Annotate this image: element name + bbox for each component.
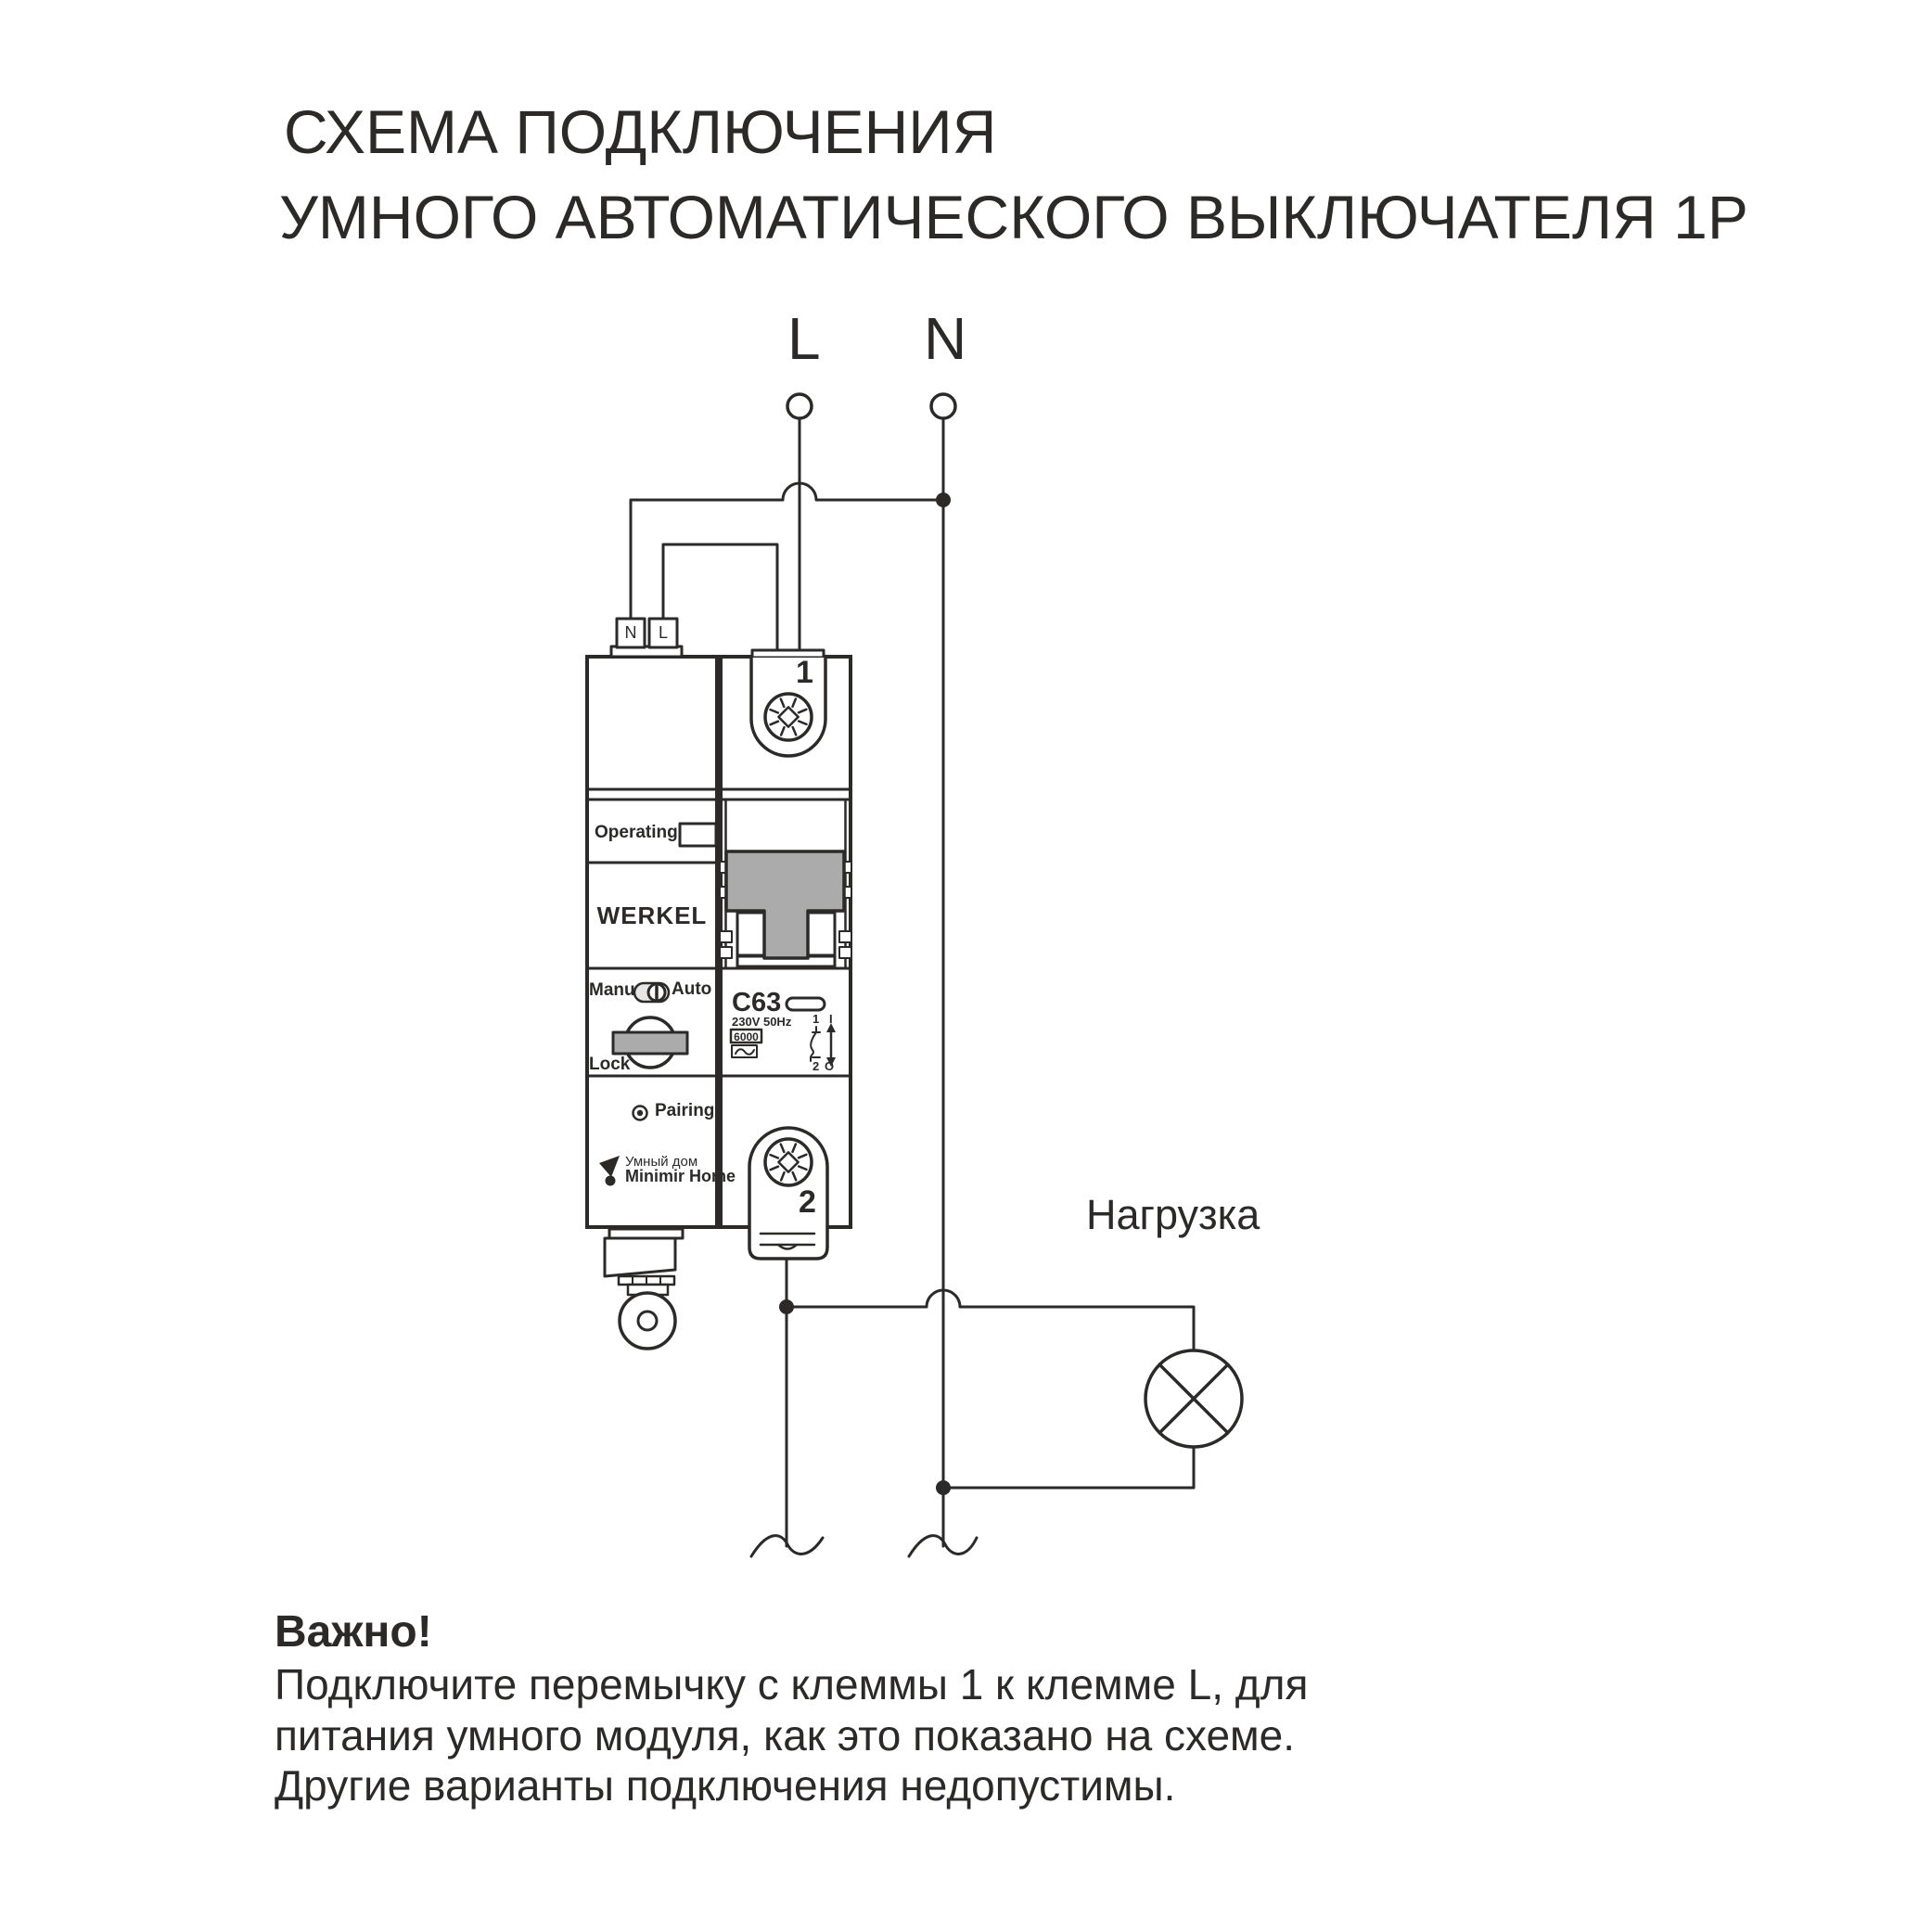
- supply-n-terminal-circle: [931, 394, 955, 418]
- breaker-terminal1-label: 1: [796, 657, 813, 690]
- wire-jumper-terminal1-to-l: [663, 544, 777, 652]
- breaker-voltage-label: 230V 50Hz: [732, 1016, 791, 1029]
- antenna-connector: [605, 1229, 683, 1349]
- smart-module-body: [587, 657, 717, 1227]
- breaker-terminal2-label: 2: [799, 1186, 816, 1220]
- breaker-window-pill: [787, 998, 825, 1010]
- pairing-button-icon: [633, 1107, 647, 1120]
- lamp-symbol: [1145, 1350, 1242, 1447]
- operating-label: Operating: [595, 824, 678, 842]
- wire-load-top: [787, 1290, 1194, 1351]
- page-title-line2: УМНОГО АВТОМАТИЧЕСКОГО ВЫКЛЮЧАТЕЛЯ 1P: [279, 186, 1748, 249]
- wire-n-to-module: [631, 483, 943, 619]
- on-label: I: [829, 1013, 833, 1026]
- breaking-capacity-label: 6000: [731, 1030, 761, 1043]
- wire-load-bottom: [943, 1446, 1194, 1488]
- off-label: O: [825, 1060, 834, 1073]
- auto-label: Auto: [672, 980, 711, 999]
- contact-bottom-label: 2: [812, 1060, 819, 1073]
- load-label: Нагрузка: [1086, 1193, 1260, 1236]
- manu-auto-toggle: [634, 983, 669, 1002]
- operating-indicator-window: [680, 824, 716, 846]
- supply-l-label: L: [787, 308, 821, 370]
- page-title-line1: СХЕМА ПОДКЛЮЧЕНИЯ: [284, 100, 996, 164]
- breaker-rating-label: C63: [732, 989, 781, 1017]
- manu-label: Manu: [589, 981, 635, 1000]
- ecosystem-label-line2: Minimir Home: [625, 1168, 736, 1185]
- lock-label: Lock: [589, 1056, 630, 1074]
- note-line2: питания умного модуля, как это показано …: [275, 1713, 1295, 1758]
- module-brand-label: WERKEL: [587, 903, 717, 928]
- note-line1: Подключите перемычку с клеммы 1 к клемме…: [275, 1662, 1308, 1707]
- supply-n-label: N: [924, 308, 966, 370]
- diagram-canvas: СХЕМА ПОДКЛЮЧЕНИЯ УМНОГО АВТОМАТИЧЕСКОГО…: [0, 0, 1932, 1932]
- note-line3: Другие варианты подключения недопустимы.: [275, 1763, 1175, 1808]
- note-heading: Важно!: [275, 1609, 432, 1656]
- breaker-terminal-1: [751, 650, 825, 756]
- contact-top-label: 1: [812, 1013, 819, 1026]
- pairing-label: Pairing: [655, 1102, 714, 1120]
- module-l-terminal-label: L: [649, 624, 677, 642]
- module-n-terminal-label: N: [617, 624, 645, 642]
- supply-l-terminal-circle: [787, 394, 812, 418]
